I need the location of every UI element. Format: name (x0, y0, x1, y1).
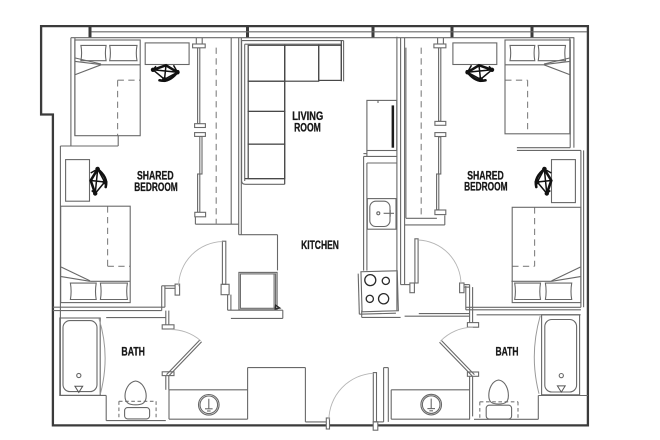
svg-text:BEDROOM: BEDROOM (134, 182, 177, 195)
svg-text:LIVING: LIVING (292, 110, 323, 123)
svg-text:BATH: BATH (121, 347, 145, 360)
svg-text:BEDROOM: BEDROOM (464, 181, 507, 194)
svg-text:BATH: BATH (496, 346, 519, 359)
svg-text:KITCHEN: KITCHEN (301, 240, 339, 253)
svg-text:ROOM: ROOM (294, 122, 321, 135)
